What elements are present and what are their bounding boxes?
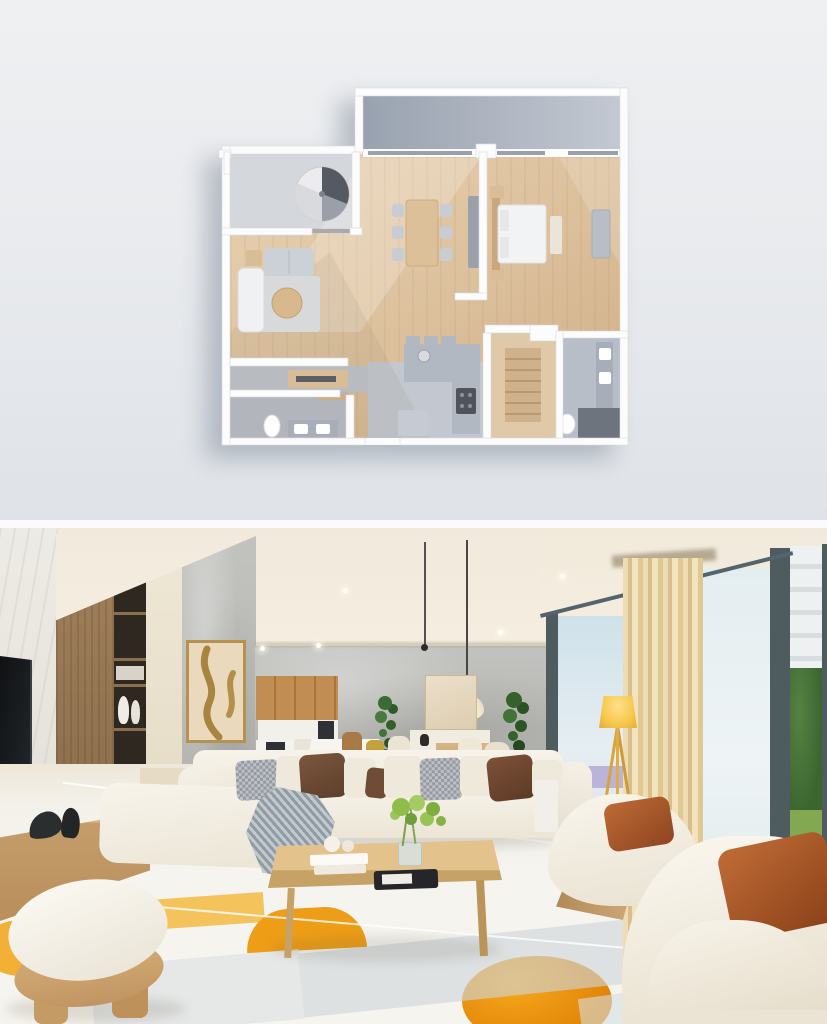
panel-divider	[0, 520, 827, 528]
table-sculptures	[324, 836, 340, 852]
kitchen-counter	[404, 344, 480, 382]
ceiling-spotlight	[260, 646, 265, 651]
interior-panel	[0, 528, 827, 1024]
round-coffee-table	[272, 288, 302, 318]
ceiling-spotlight	[498, 630, 503, 635]
dark-counter	[578, 408, 620, 438]
pillow-brown	[486, 754, 536, 803]
dresser	[592, 210, 610, 258]
book-stack	[116, 666, 144, 680]
side-table	[246, 250, 262, 266]
outside-trees	[790, 668, 822, 818]
cooktop	[456, 388, 476, 414]
kitchen-upper-cabinets	[256, 676, 338, 720]
pendant-cord-2	[424, 542, 426, 646]
hallway-steps	[505, 348, 541, 422]
chaise-longue	[238, 268, 264, 332]
abstract-art-frame	[186, 640, 246, 743]
back-art-panel	[425, 675, 477, 730]
pillow-gray-houndstooth	[419, 757, 462, 800]
dining-table	[406, 200, 438, 266]
rust-pillow-rear	[603, 795, 676, 853]
nightstand	[490, 186, 504, 199]
ceiling-spotlight	[560, 574, 565, 579]
floorplan-render	[0, 0, 827, 520]
table-shadow	[272, 936, 502, 962]
plant-left	[378, 696, 392, 710]
green-flowers	[392, 798, 410, 816]
white-books-2	[314, 864, 366, 875]
black-vase	[420, 734, 429, 746]
bench	[550, 216, 562, 254]
white-vase	[118, 696, 129, 724]
balcony-floor	[363, 96, 620, 152]
floorplan-panel	[0, 0, 827, 520]
tv-sideboard	[468, 196, 480, 268]
tray-papers	[382, 873, 412, 884]
kitchen-cabinet	[398, 410, 428, 436]
white-side-table	[534, 780, 558, 832]
plant-right	[506, 692, 522, 708]
yellow-lamp-shade	[599, 696, 637, 728]
spiral-staircase	[295, 167, 349, 221]
outside-building	[790, 546, 822, 676]
ceiling-spotlight	[343, 588, 348, 593]
toilet	[264, 415, 280, 437]
listing-render-composite	[0, 0, 827, 1024]
pendant-bulb	[421, 644, 428, 651]
kitchen-sink	[418, 350, 430, 362]
dining-furniture	[392, 200, 452, 266]
ceiling-spotlight	[316, 643, 321, 648]
art-squiggle	[189, 643, 243, 740]
white-vase	[131, 700, 140, 724]
pillow-brown	[299, 752, 348, 799]
pillow-cream	[384, 756, 422, 798]
wall-ceiling-shadow	[255, 642, 547, 647]
coffee-machine	[318, 721, 334, 740]
